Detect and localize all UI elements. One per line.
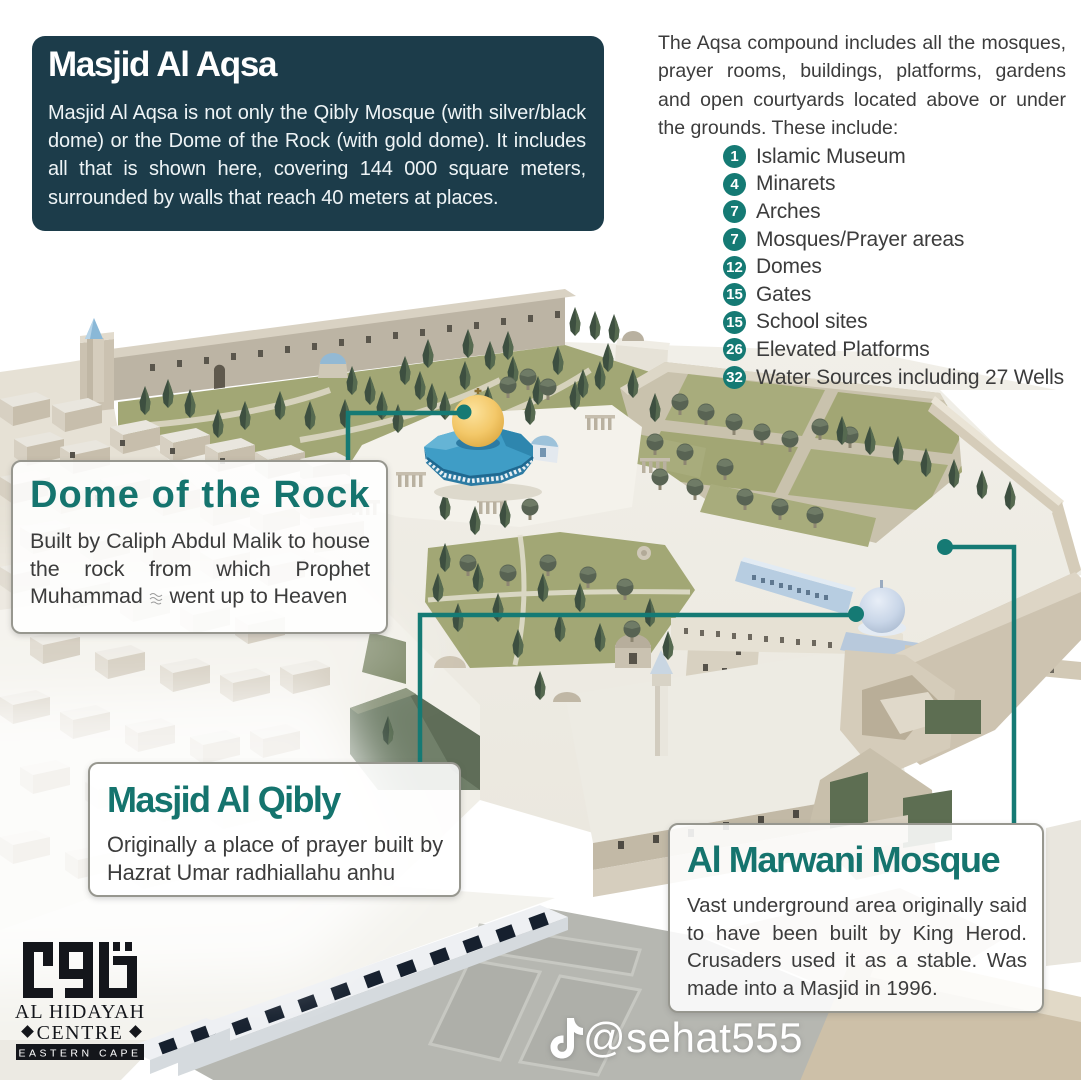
svg-text:EASTERN CAPE: EASTERN CAPE [18,1048,141,1060]
svg-text:AL HIDAYAH: AL HIDAYAH [15,1001,145,1023]
svg-text:CENTRE: CENTRE [37,1022,124,1044]
